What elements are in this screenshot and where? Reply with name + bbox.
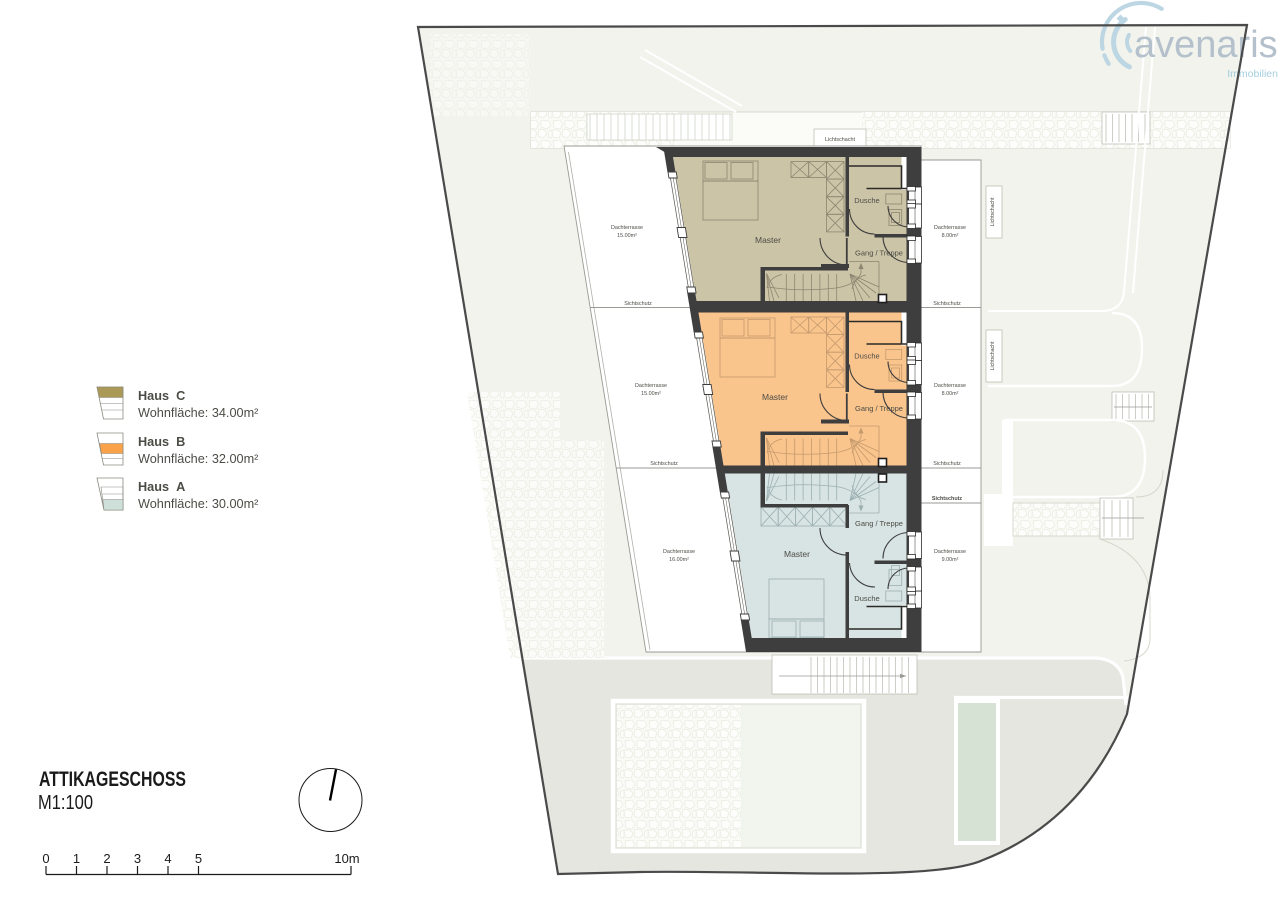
svg-text:Dachterrasse: Dachterrasse	[611, 225, 643, 231]
svg-text:avenaris: avenaris	[1134, 24, 1278, 66]
svg-text:Gang / Treppe: Gang / Treppe	[855, 249, 903, 258]
svg-text:ATTIKAGESCHOSS: ATTIKAGESCHOSS	[39, 768, 186, 791]
svg-text:Dusche: Dusche	[854, 352, 879, 361]
svg-text:Lichtschacht: Lichtschacht	[825, 137, 855, 143]
svg-text:0: 0	[42, 851, 49, 866]
svg-text:Immobilien: Immobilien	[1227, 68, 1278, 80]
svg-text:Master: Master	[755, 235, 781, 245]
svg-text:Sichtschutz: Sichtschutz	[624, 301, 652, 307]
svg-text:Haus B: Haus B	[138, 435, 185, 449]
svg-text:10m: 10m	[334, 851, 359, 866]
svg-text:Dachterrasse: Dachterrasse	[635, 383, 667, 389]
svg-text:Master: Master	[784, 549, 810, 559]
svg-text:Lichtschacht: Lichtschacht	[990, 341, 996, 370]
svg-text:Haus C: Haus C	[138, 389, 185, 403]
svg-text:8.00m²: 8.00m²	[942, 233, 959, 239]
svg-text:1: 1	[73, 851, 80, 866]
svg-text:Wohnfläche: 34.00m²: Wohnfläche: 34.00m²	[138, 406, 258, 420]
svg-text:16.00m²: 16.00m²	[669, 557, 689, 563]
svg-text:Lichtschacht: Lichtschacht	[990, 197, 996, 226]
svg-text:Dachterrasse: Dachterrasse	[934, 383, 966, 389]
svg-text:M1:100: M1:100	[38, 792, 93, 814]
svg-text:Dusche: Dusche	[854, 594, 879, 603]
svg-text:3: 3	[134, 851, 141, 866]
svg-text:Wohnfläche: 32.00m²: Wohnfläche: 32.00m²	[138, 452, 258, 466]
svg-text:5: 5	[195, 851, 202, 866]
svg-text:Dachterrasse: Dachterrasse	[934, 549, 966, 555]
svg-text:Dachterrasse: Dachterrasse	[934, 225, 966, 231]
svg-text:9.00m²: 9.00m²	[942, 557, 959, 563]
svg-text:Dusche: Dusche	[854, 196, 879, 205]
svg-text:4: 4	[164, 851, 171, 866]
svg-text:2: 2	[103, 851, 110, 866]
svg-text:Master: Master	[762, 392, 788, 402]
svg-text:Wohnfläche: 30.00m²: Wohnfläche: 30.00m²	[138, 497, 258, 511]
svg-text:8.00m²: 8.00m²	[942, 391, 959, 397]
svg-text:15.00m²: 15.00m²	[641, 391, 661, 397]
svg-text:Gang / Treppe: Gang / Treppe	[855, 519, 903, 528]
svg-text:Dachterrasse: Dachterrasse	[663, 549, 695, 555]
svg-text:Sichtschutz: Sichtschutz	[650, 461, 678, 467]
svg-text:Gang / Treppe: Gang / Treppe	[855, 404, 903, 413]
svg-text:Haus A: Haus A	[138, 480, 185, 494]
svg-text:15.00m²: 15.00m²	[617, 233, 637, 239]
svg-text:Sichtschutz: Sichtschutz	[933, 461, 961, 467]
svg-text:Sichtschutz: Sichtschutz	[932, 496, 963, 502]
svg-text:Sichtschutz: Sichtschutz	[933, 301, 961, 307]
